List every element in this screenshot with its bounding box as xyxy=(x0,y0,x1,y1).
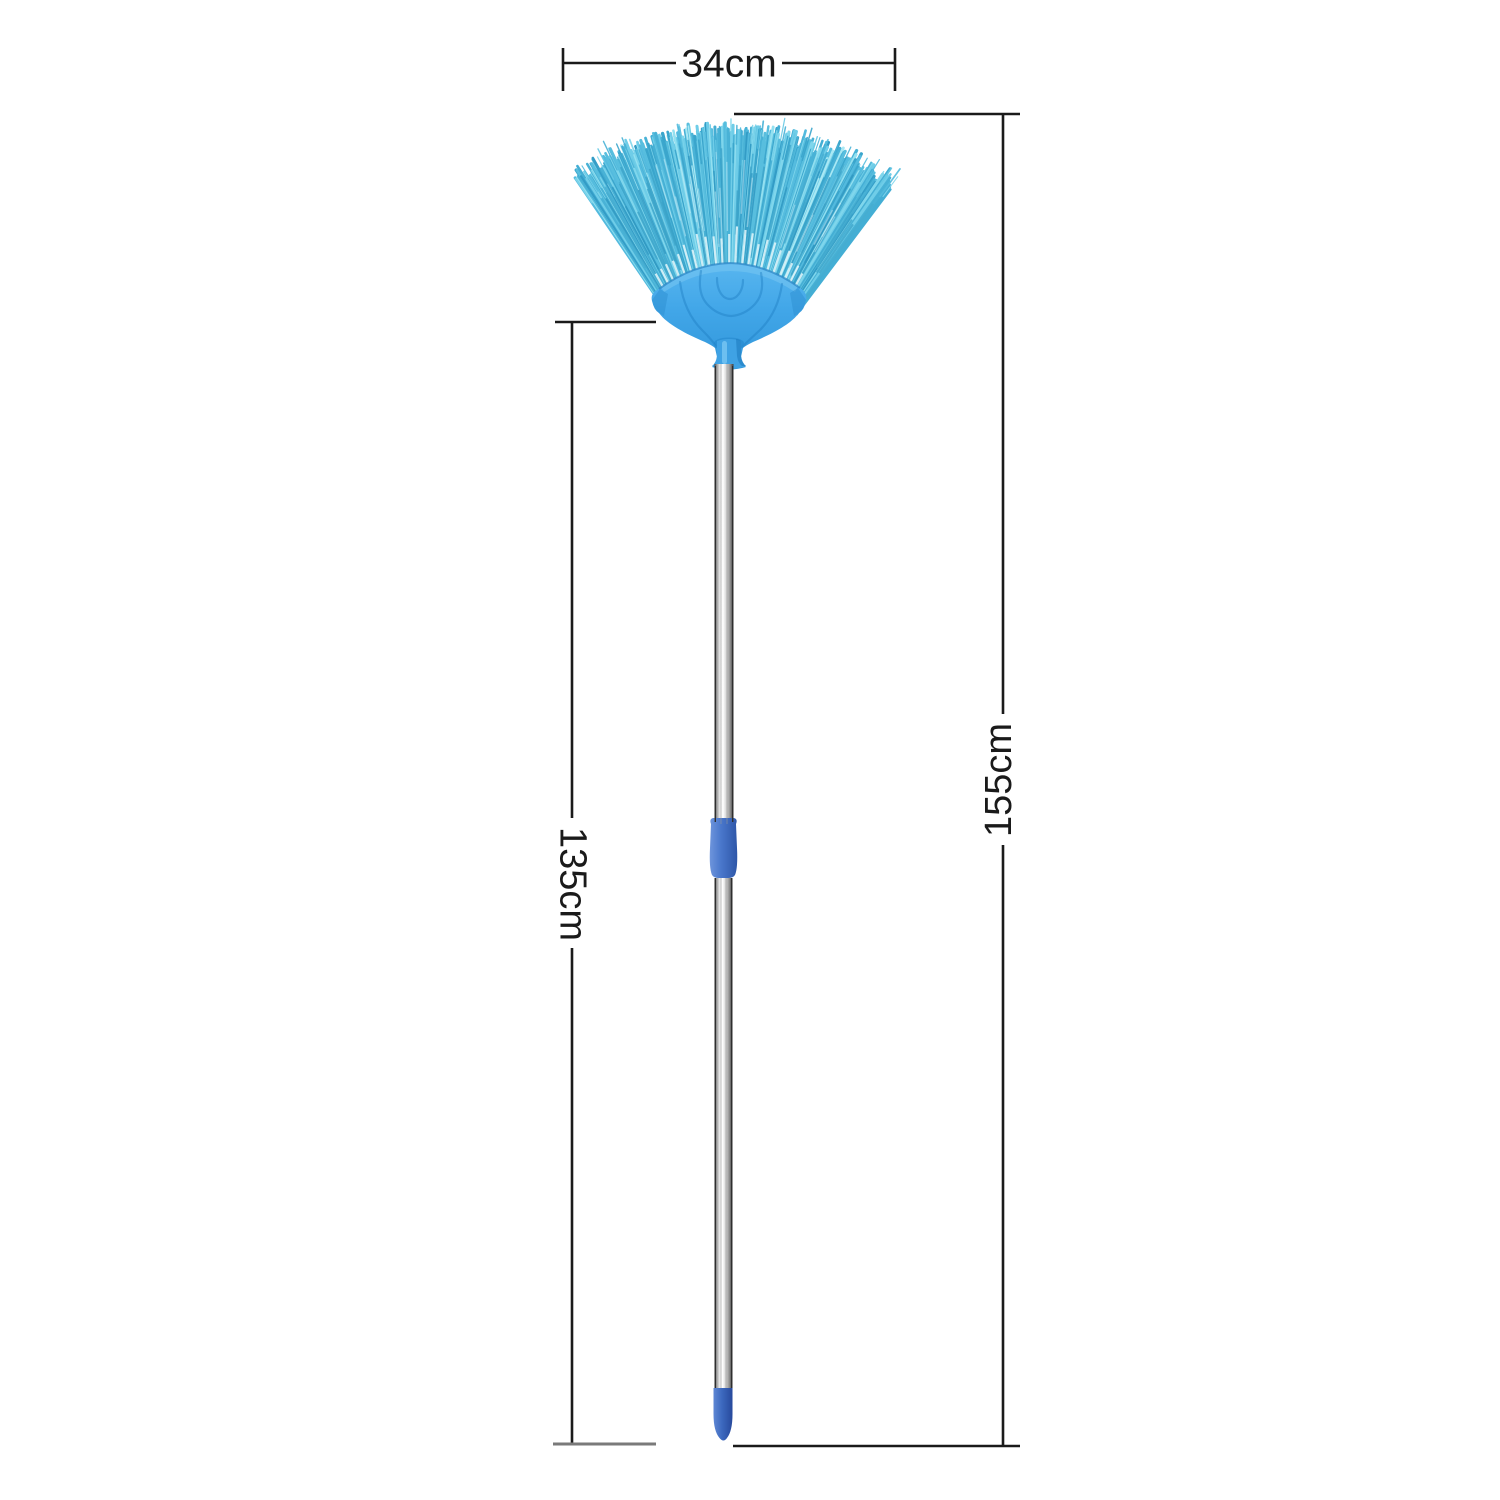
svg-text:34cm: 34cm xyxy=(681,43,776,86)
svg-text:135cm: 135cm xyxy=(552,827,594,941)
svg-text:155cm: 155cm xyxy=(978,723,1020,837)
